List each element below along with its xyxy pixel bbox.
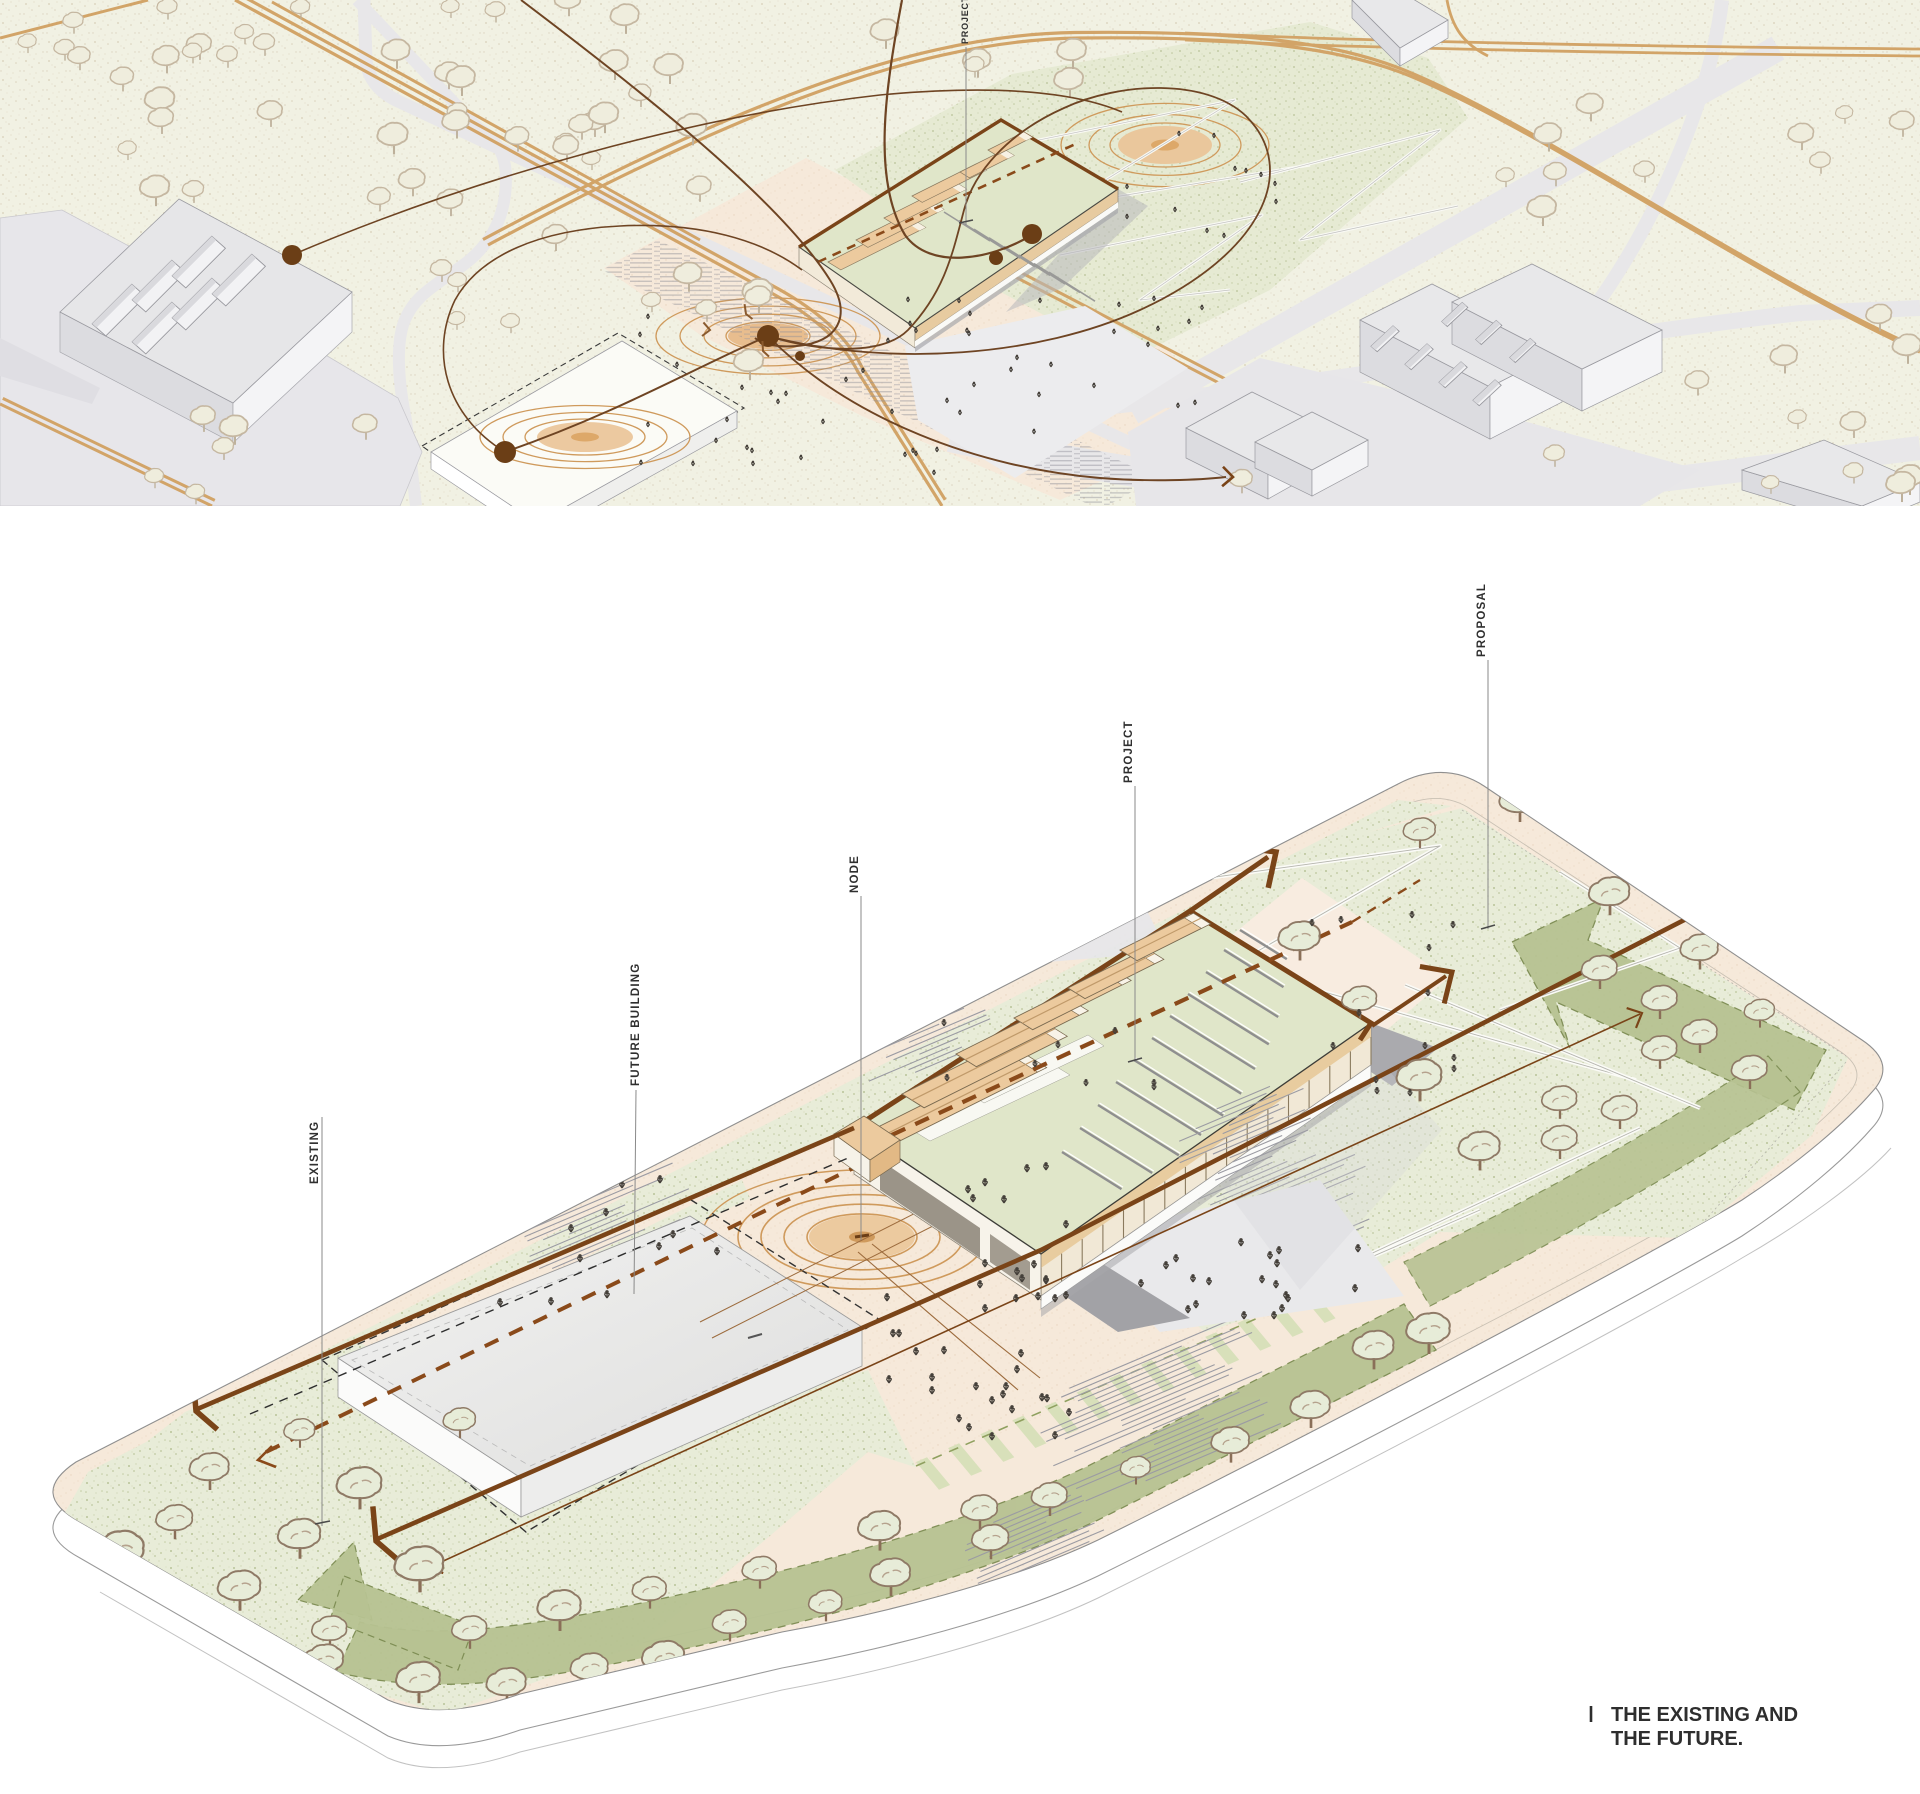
svg-text:THE FUTURE.: THE FUTURE. [1611, 1728, 1743, 1750]
svg-text:PROJECT: PROJECT [960, 0, 970, 44]
svg-text:THE EXISTING AND: THE EXISTING AND [1611, 1704, 1798, 1726]
svg-text:EXISTING: EXISTING [309, 1121, 321, 1184]
svg-text:PROJECT: PROJECT [1123, 720, 1135, 783]
svg-text:PROPOSAL: PROPOSAL [1476, 583, 1488, 657]
svg-text:FUTURE BUILDING: FUTURE BUILDING [630, 963, 642, 1086]
svg-text:NODE: NODE [849, 855, 861, 893]
